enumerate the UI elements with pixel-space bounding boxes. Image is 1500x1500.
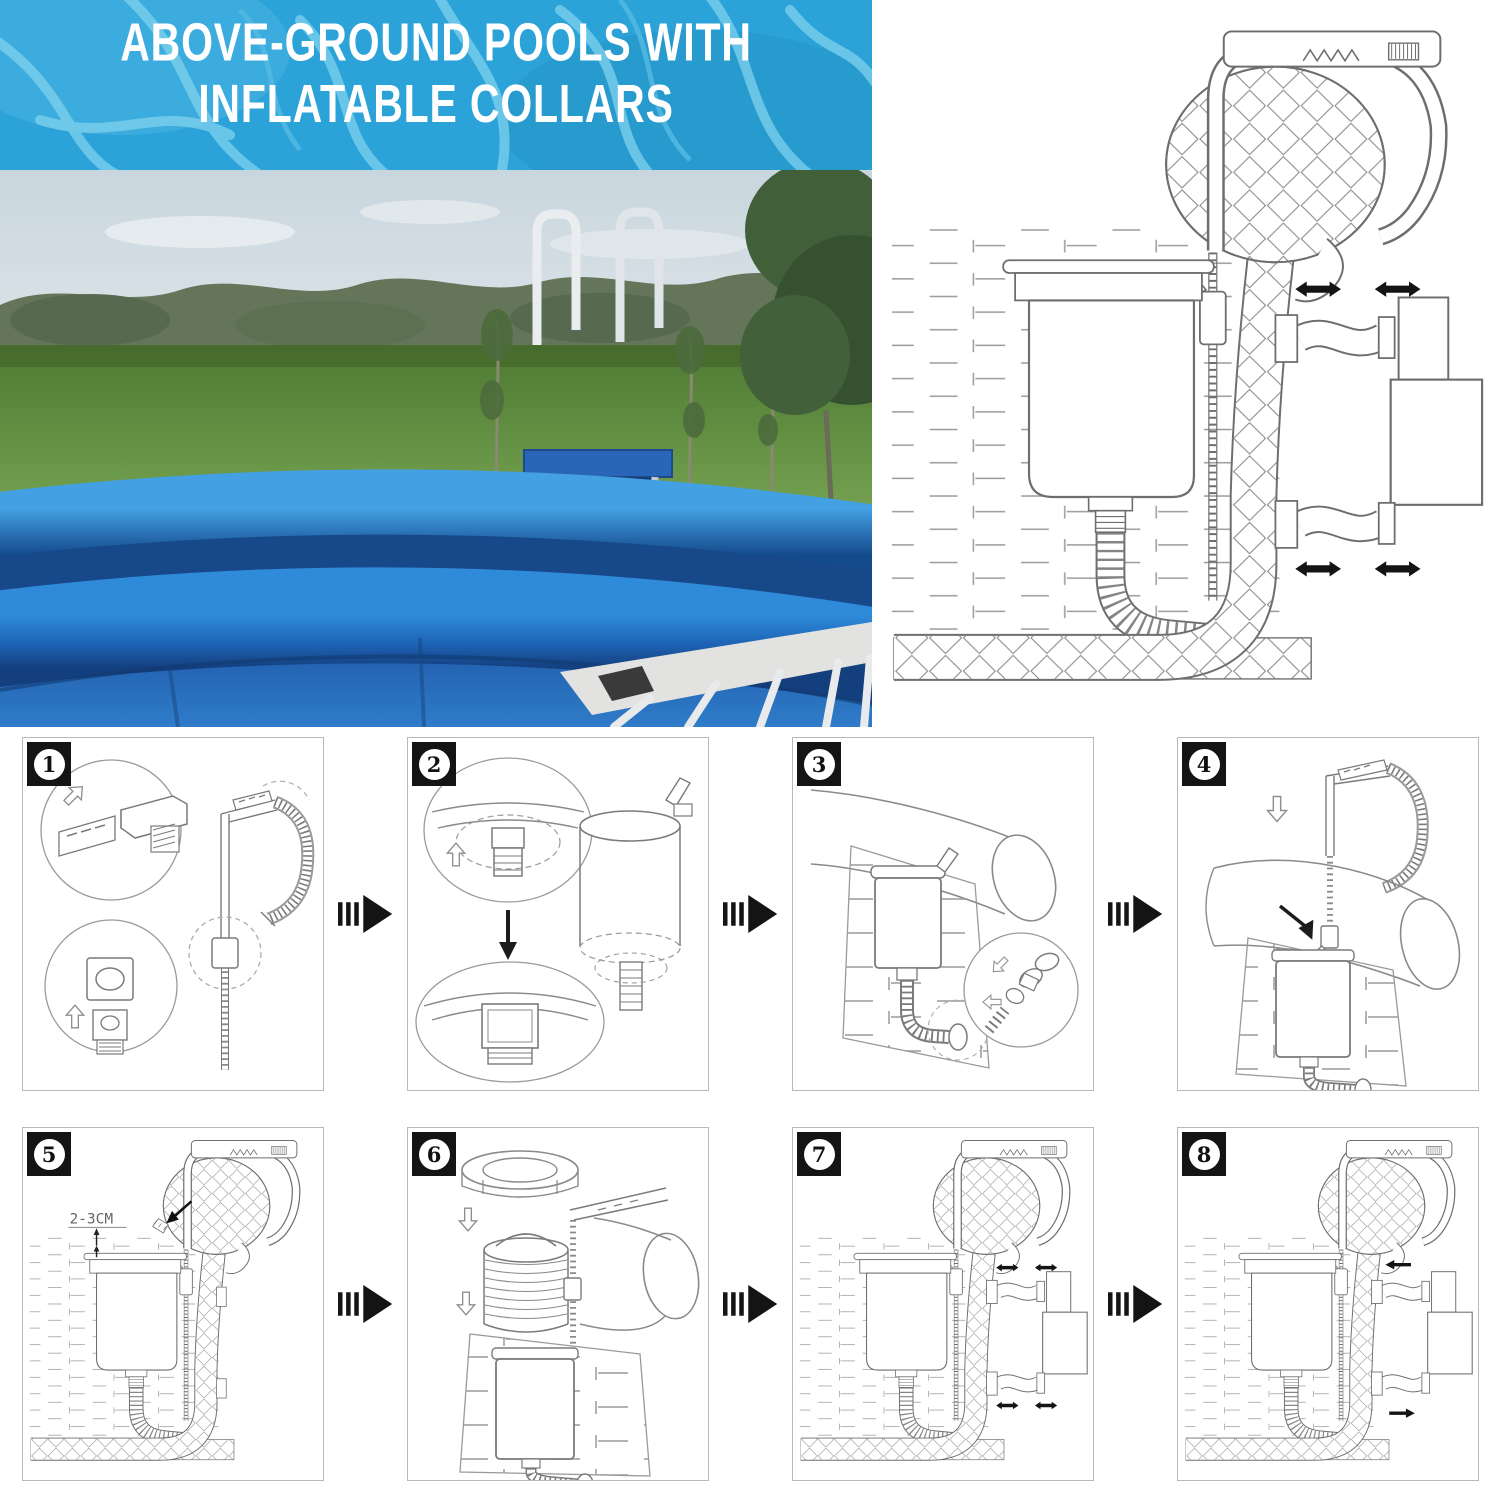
step-separator bbox=[324, 737, 407, 1091]
step-6-drawing bbox=[408, 1128, 708, 1480]
fast-forward-arrow-icon bbox=[338, 1283, 394, 1325]
step-number-badge: 2 bbox=[412, 742, 456, 786]
step-number-badge: 7 bbox=[797, 1132, 841, 1176]
step-number: 7 bbox=[804, 1139, 835, 1170]
step-panel-5: 2-3CM 5 bbox=[22, 1127, 324, 1481]
step-7-drawing bbox=[793, 1128, 1093, 1480]
step-8-drawing bbox=[1178, 1128, 1478, 1480]
step-number: 8 bbox=[1189, 1139, 1220, 1170]
step-number-badge: 1 bbox=[27, 742, 71, 786]
page-title: ABOVE-GROUND POOLS WITH INFLATABLE COLLA… bbox=[78, 12, 793, 135]
step-separator bbox=[709, 737, 792, 1091]
hero-photo-block: ABOVE-GROUND POOLS WITH INFLATABLE COLLA… bbox=[0, 0, 872, 727]
step-number-badge: 3 bbox=[797, 742, 841, 786]
title-banner: ABOVE-GROUND POOLS WITH INFLATABLE COLLA… bbox=[0, 0, 872, 170]
step-number: 5 bbox=[34, 1139, 65, 1170]
step-panel-6: 6 bbox=[407, 1127, 709, 1481]
step-5-drawing: 2-3CM bbox=[23, 1128, 323, 1480]
fast-forward-arrow-icon bbox=[723, 1283, 779, 1325]
step-separator bbox=[1094, 1127, 1177, 1481]
title-line-1: ABOVE-GROUND POOLS WITH bbox=[78, 12, 793, 74]
step-number: 4 bbox=[1189, 749, 1220, 780]
step-panel-2: 2 bbox=[407, 737, 709, 1091]
pool-photo bbox=[0, 170, 872, 727]
step-number-badge: 6 bbox=[412, 1132, 456, 1176]
step-number: 1 bbox=[34, 749, 65, 780]
fast-forward-arrow-icon bbox=[338, 893, 394, 935]
flow-out-arrow-icon bbox=[1389, 1409, 1415, 1418]
step-2-drawing bbox=[408, 738, 708, 1090]
title-line-2: INFLATABLE COLLARS bbox=[78, 74, 793, 136]
step-panel-8: 8 bbox=[1177, 1127, 1479, 1481]
step-separator bbox=[1094, 737, 1177, 1091]
steps-row-1: 1 bbox=[22, 737, 1488, 1091]
skimmer-cross-section-diagram bbox=[878, 6, 1494, 720]
step-number: 3 bbox=[804, 749, 835, 780]
step-1-drawing bbox=[23, 738, 323, 1090]
main-diagram-block bbox=[872, 0, 1500, 727]
step-separator bbox=[324, 1127, 407, 1481]
fast-forward-arrow-icon bbox=[723, 893, 779, 935]
instruction-sheet: ABOVE-GROUND POOLS WITH INFLATABLE COLLA… bbox=[0, 0, 1500, 1500]
step-panel-3: 3 bbox=[792, 737, 1094, 1091]
step-number-badge: 8 bbox=[1182, 1132, 1226, 1176]
step-panel-1: 1 bbox=[22, 737, 324, 1091]
step-4-drawing bbox=[1178, 738, 1478, 1090]
fast-forward-arrow-icon bbox=[1108, 893, 1164, 935]
step-number-badge: 5 bbox=[27, 1132, 71, 1176]
steps-row-2: 2-3CM 5 bbox=[22, 1127, 1488, 1481]
top-section: ABOVE-GROUND POOLS WITH INFLATABLE COLLA… bbox=[0, 0, 1500, 727]
step-number: 2 bbox=[419, 749, 450, 780]
step-number: 6 bbox=[419, 1139, 450, 1170]
fast-forward-arrow-icon bbox=[1108, 1283, 1164, 1325]
step-panel-7: 7 bbox=[792, 1127, 1094, 1481]
step-panel-4: 4 bbox=[1177, 737, 1479, 1091]
step-separator bbox=[709, 1127, 792, 1481]
step-number-badge: 4 bbox=[1182, 742, 1226, 786]
gap-annotation: 2-3CM bbox=[69, 1211, 113, 1227]
step-3-drawing bbox=[793, 738, 1093, 1090]
